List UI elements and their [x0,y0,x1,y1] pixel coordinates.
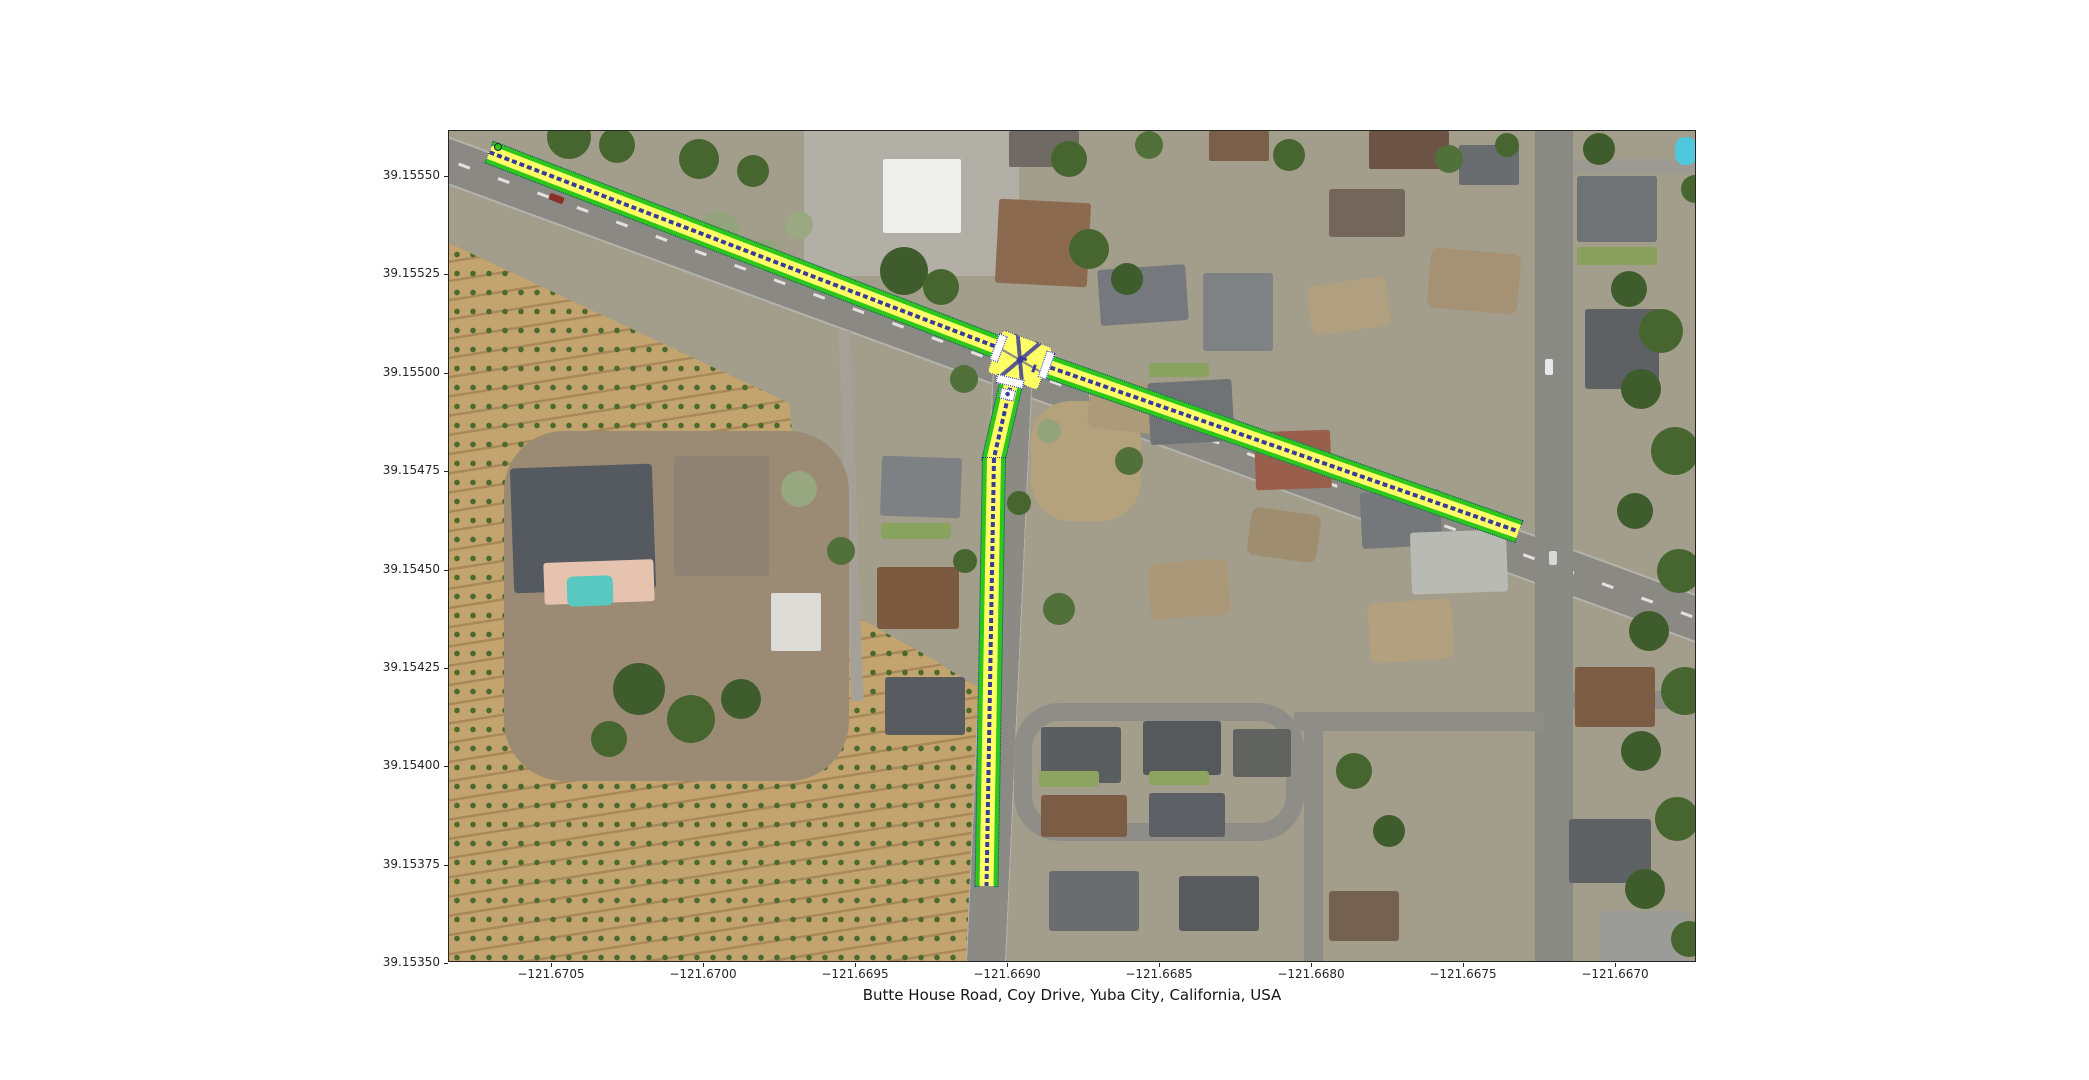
map-feature [1179,876,1259,931]
map-feature [781,471,817,507]
y-tick-label: 39.15525 [360,266,440,280]
figure-title: Butte House Road, Coy Drive, Yuba City, … [448,986,1696,1004]
map-feature [1583,133,1615,165]
map-feature [1143,721,1221,775]
map-feature [1115,447,1143,475]
map-feature [1149,771,1209,785]
map-feature [1410,529,1508,594]
map-feature [827,537,855,565]
map-feature [1051,141,1087,177]
map-feature [1625,869,1665,909]
y-tick-label: 39.15425 [360,660,440,674]
map-feature [1149,793,1225,837]
x-tick-label: −121.6670 [1560,967,1670,981]
map-feature [1535,131,1573,961]
x-tick-label: −121.6675 [1408,967,1518,981]
map-feature [1135,131,1163,159]
map-feature [591,721,627,757]
map-feature [880,247,928,295]
map-feature [1049,871,1139,931]
x-tick-mark [1615,963,1616,967]
x-tick-label: −121.6680 [1256,967,1366,981]
map-feature [1233,729,1291,777]
map-feature [877,567,959,629]
map-feature [1041,795,1127,837]
map-feature [547,131,591,159]
map-feature [599,131,635,163]
map-feature [566,575,613,607]
map-feature [1639,309,1683,353]
map-feature [1037,419,1061,443]
map-feature [1621,731,1661,771]
map-feature [1373,815,1405,847]
map-feature [1675,137,1695,165]
map-feature [771,593,821,651]
map-feature [721,679,761,719]
map-plot-area [448,130,1696,962]
map-feature [1651,427,1695,475]
map-feature [1657,549,1695,593]
y-tick-label: 39.15475 [360,463,440,477]
map-feature [1367,598,1455,664]
map-feature [1149,363,1209,377]
map-feature [1043,593,1075,625]
map-feature [1209,131,1269,161]
map-feature [885,677,965,735]
map-feature [1007,491,1031,515]
figure: Butte House Road, Coy Drive, Yuba City, … [0,0,2089,1080]
y-tick-mark [444,274,448,275]
y-tick-mark [444,570,448,571]
y-tick-mark [444,766,448,767]
map-feature [679,139,719,179]
map-feature [1069,229,1109,269]
map-feature [881,523,951,539]
map-feature [1617,493,1653,529]
map-feature [883,159,961,233]
map-feature [1575,667,1655,727]
map-feature [1294,712,1544,731]
y-tick-mark [444,865,448,866]
map-feature [1304,721,1323,961]
map-feature [1329,891,1399,941]
map-feature [1545,359,1553,375]
map-feature [1577,176,1657,242]
map-feature [1203,273,1273,351]
satellite-map [449,131,1695,961]
map-feature [1549,551,1557,565]
map-feature [1306,276,1392,337]
map-feature [1655,797,1695,841]
map-feature [1621,369,1661,409]
map-feature [1611,271,1647,307]
map-feature [1111,263,1143,295]
x-tick-mark [1311,963,1312,967]
x-tick-mark [703,963,704,967]
map-feature [613,663,665,715]
x-tick-mark [1463,963,1464,967]
x-tick-label: −121.6705 [496,967,606,981]
map-feature [737,155,769,187]
x-tick-mark [1159,963,1160,967]
map-feature [1039,771,1099,787]
y-tick-label: 39.15500 [360,365,440,379]
map-feature [1246,506,1322,563]
route-start-node [494,143,502,151]
map-feature [1273,139,1305,171]
map-feature [923,269,959,305]
x-tick-label: −121.6685 [1104,967,1214,981]
map-feature [785,211,813,239]
map-feature [1147,558,1232,621]
map-feature [1329,189,1405,237]
x-tick-mark [551,963,552,967]
map-feature [1495,133,1519,157]
map-feature [1435,145,1463,173]
x-tick-label: −121.6690 [952,967,1062,981]
map-feature [1629,611,1669,651]
map-feature [953,549,977,573]
map-feature [667,695,715,743]
y-tick-mark [444,176,448,177]
x-tick-label: −121.6695 [800,967,910,981]
y-tick-label: 39.15375 [360,857,440,871]
y-tick-label: 39.15550 [360,168,440,182]
x-tick-mark [1007,963,1008,967]
x-tick-mark [855,963,856,967]
y-tick-label: 39.15450 [360,562,440,576]
y-tick-mark [444,963,448,964]
map-feature [674,456,769,576]
y-tick-label: 39.15350 [360,955,440,969]
x-tick-label: −121.6700 [648,967,758,981]
y-tick-mark [444,668,448,669]
map-feature [950,365,978,393]
y-tick-mark [444,471,448,472]
map-feature [1681,175,1695,203]
y-tick-mark [444,373,448,374]
map-feature [1577,247,1657,265]
map-feature [1336,753,1372,789]
map-feature [880,456,962,519]
map-feature [1427,247,1522,315]
y-tick-label: 39.15400 [360,758,440,772]
